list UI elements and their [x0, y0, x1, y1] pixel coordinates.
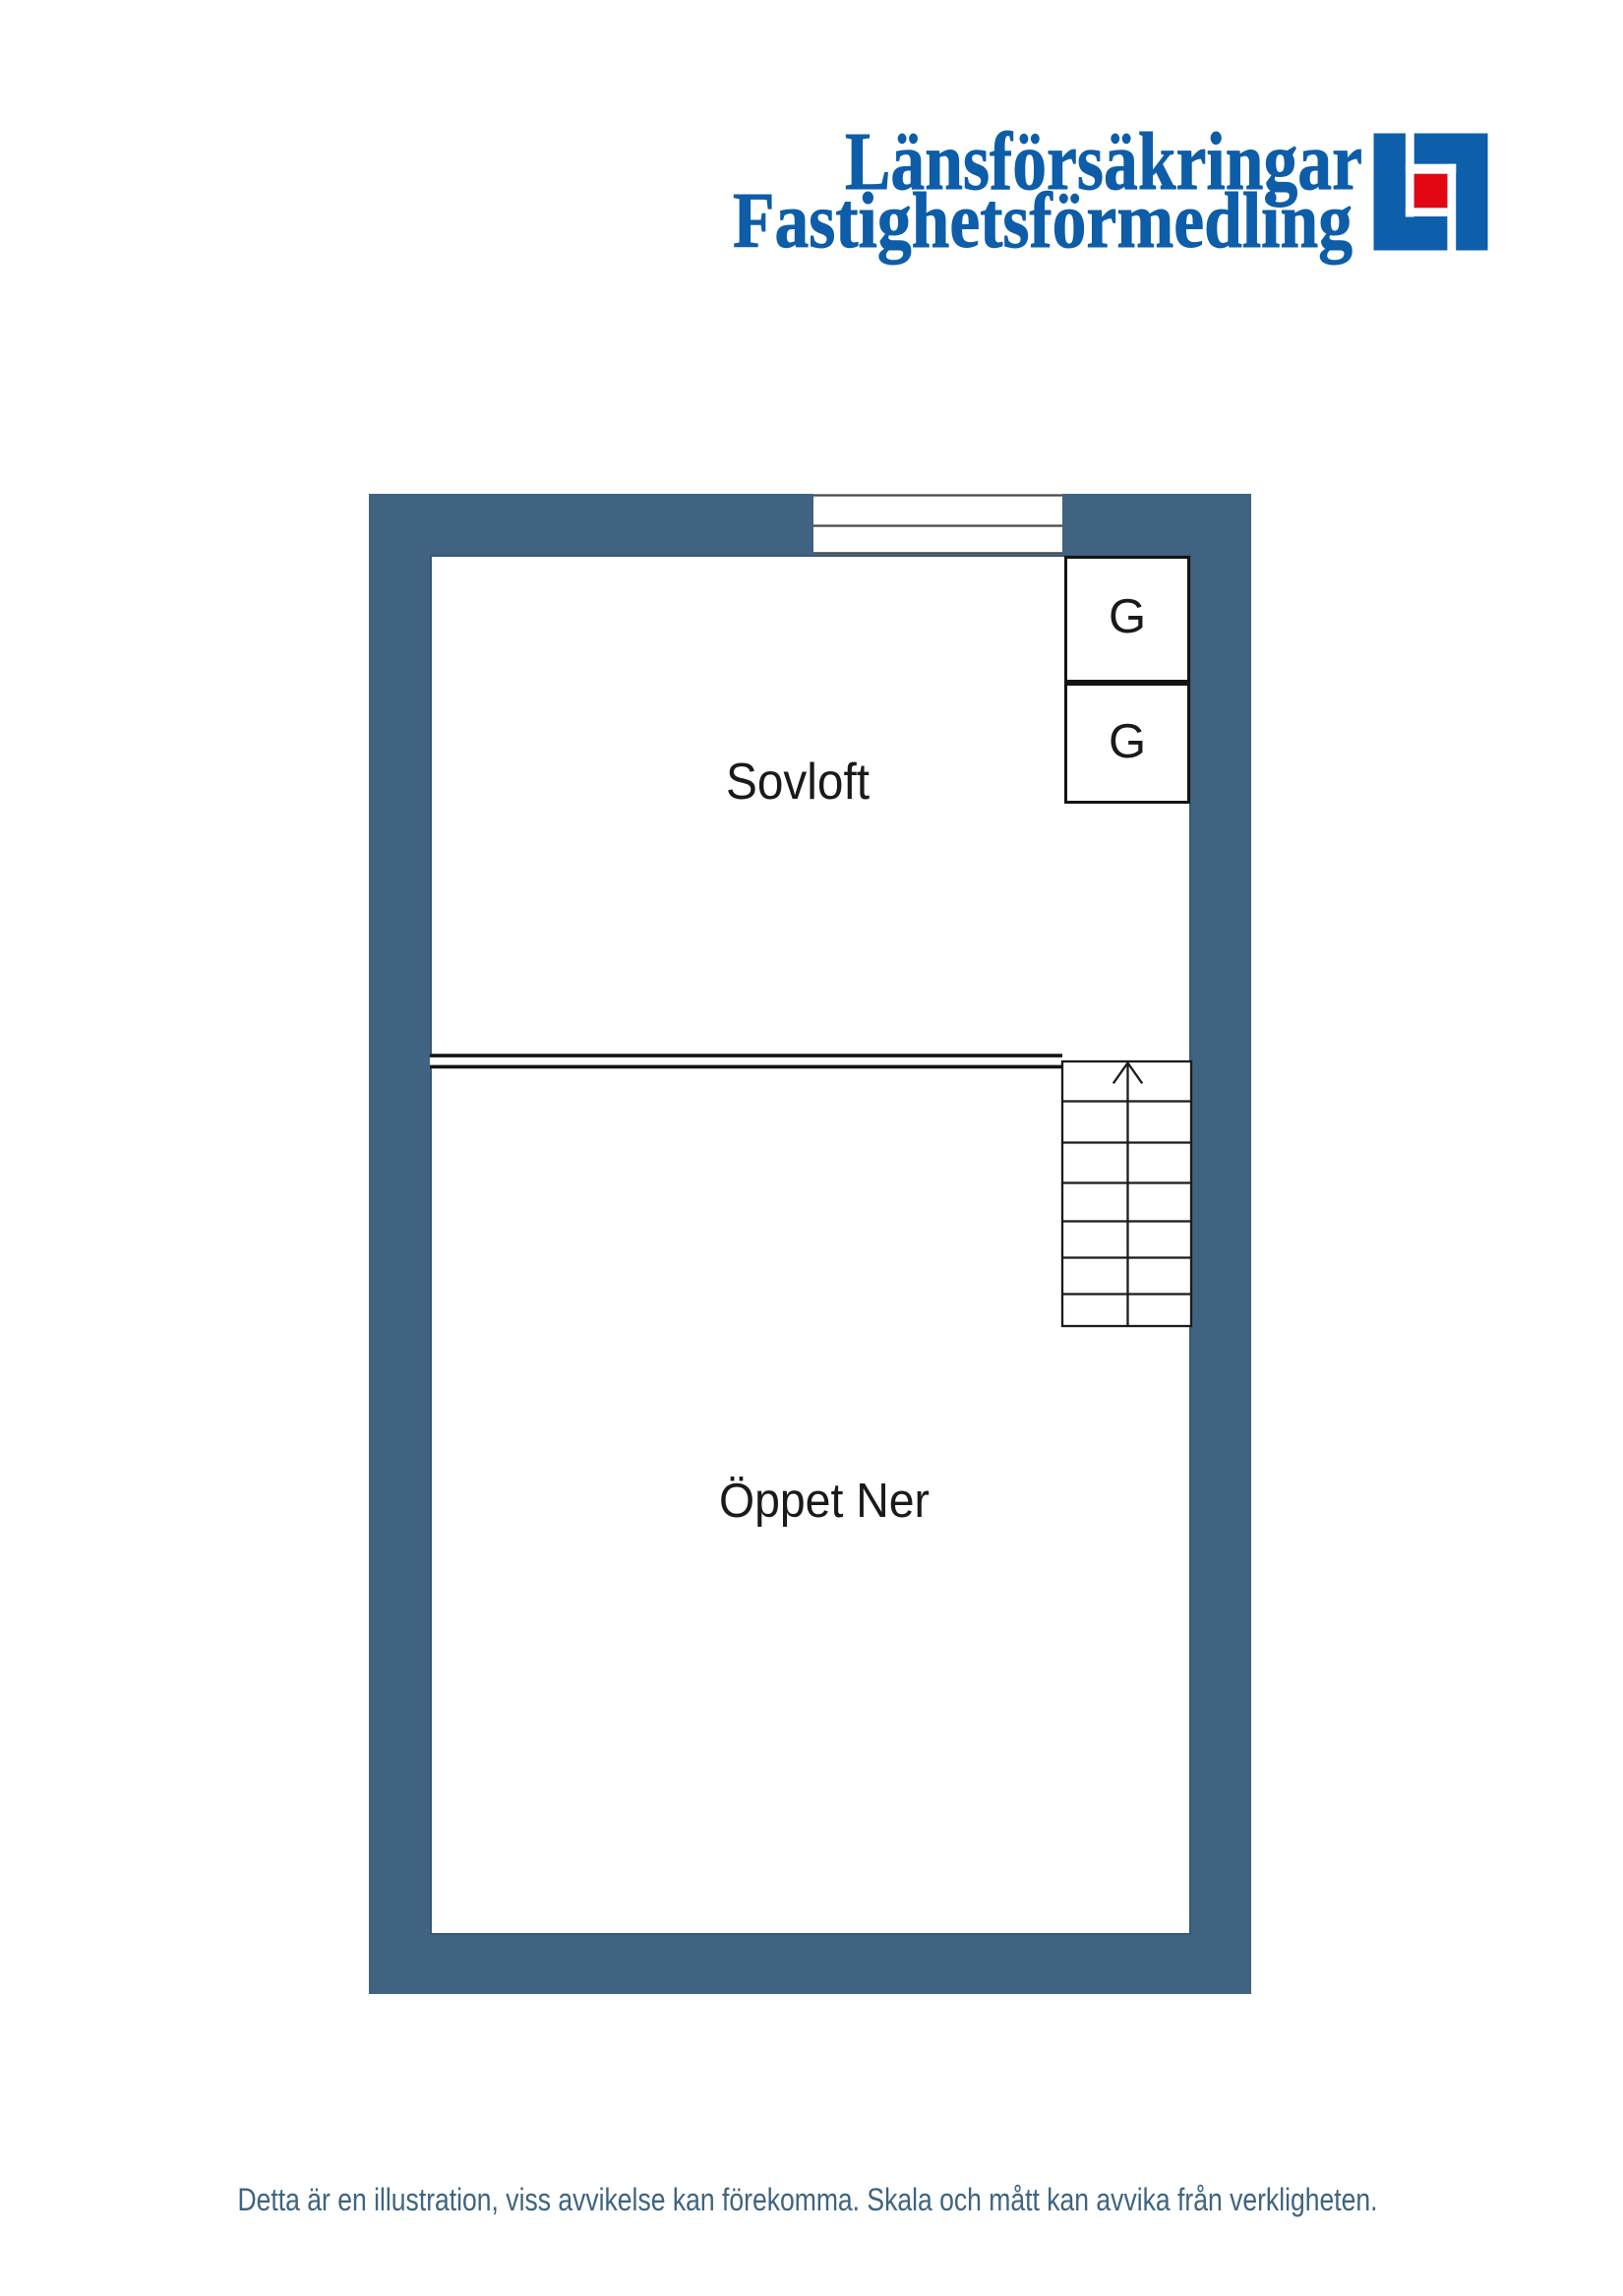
svg-text:Sovloft: Sovloft [726, 754, 870, 811]
svg-text:Fastighetsförmedling: Fastighetsförmedling [733, 178, 1352, 265]
svg-text:Detta är en illustration, viss: Detta är en illustration, viss avvikelse… [238, 2182, 1378, 2217]
svg-text:G: G [1109, 590, 1146, 643]
svg-text:G: G [1109, 715, 1146, 768]
svg-text:Öppet Ner: Öppet Ner [719, 1475, 930, 1528]
